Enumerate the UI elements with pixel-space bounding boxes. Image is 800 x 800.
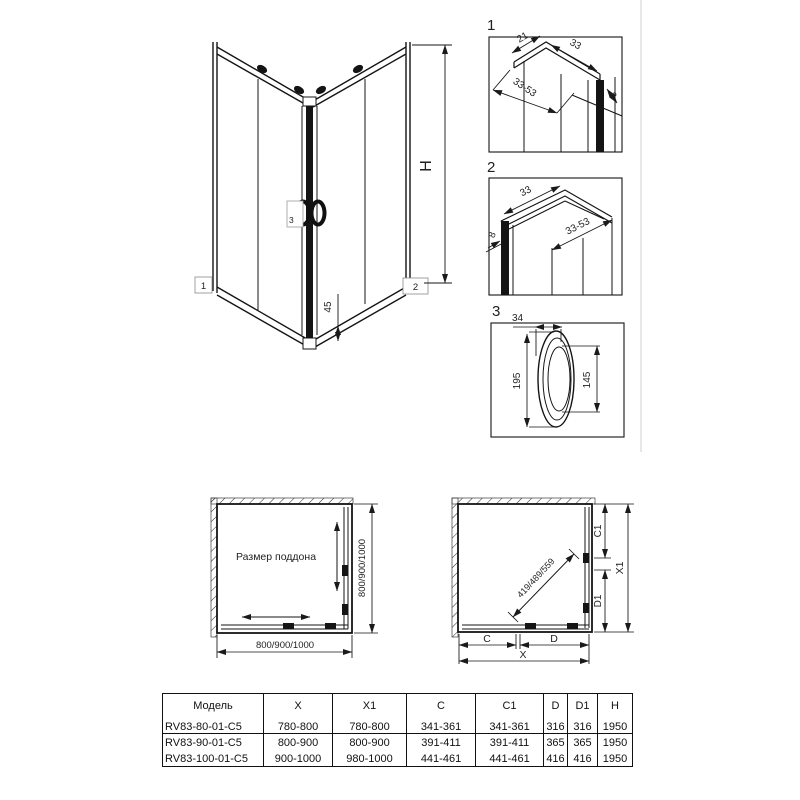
iso-callout-3: 3 bbox=[289, 215, 294, 225]
table-row: RV83-90-01-C5 800-900 800-900 391-411 39… bbox=[163, 734, 633, 752]
cell-d1: 365 bbox=[568, 734, 598, 752]
spec-table: Модель X X1 C C1 D D1 H RV83-80-01-C5 78… bbox=[162, 693, 633, 767]
cell-model: RV83-90-01-C5 bbox=[163, 734, 264, 752]
cell-d1: 416 bbox=[568, 751, 598, 767]
header-d1: D1 bbox=[568, 694, 598, 718]
iso-callout-1: 1 bbox=[201, 281, 206, 292]
cell-x1: 780-800 bbox=[333, 717, 407, 734]
detail-2-dim-range: 33-53 bbox=[564, 216, 592, 238]
tray-size-label: Размер поддона bbox=[236, 551, 316, 563]
dim-x1-label: X1 bbox=[614, 561, 626, 574]
dim-c-label: C bbox=[483, 633, 491, 645]
cell-c: 341-361 bbox=[407, 717, 476, 734]
detail-3-dim-195: 195 bbox=[512, 372, 523, 389]
detail-3 bbox=[491, 323, 624, 437]
cell-d: 365 bbox=[544, 734, 568, 752]
detail-1-dim-8: 8 bbox=[606, 91, 618, 100]
dim-d1-label: D1 bbox=[593, 594, 604, 607]
detail-3-dim-145: 145 bbox=[582, 371, 593, 388]
detail-2-dim-8: 8 bbox=[487, 231, 499, 240]
detail-3-number: 3 bbox=[492, 303, 500, 320]
detail-1-number: 1 bbox=[487, 17, 495, 34]
cell-x: 900-1000 bbox=[264, 751, 333, 767]
plan-right bbox=[452, 498, 634, 664]
header-d: D bbox=[544, 694, 568, 718]
dim-d-label: D bbox=[550, 633, 558, 645]
table-header-row: Модель X X1 C C1 D D1 H bbox=[163, 694, 633, 718]
header-c1: C1 bbox=[476, 694, 544, 718]
header-x1: X1 bbox=[333, 694, 407, 718]
cell-model: RV83-80-01-C5 bbox=[163, 717, 264, 734]
cell-h: 1950 bbox=[598, 734, 633, 752]
cell-c1: 341-361 bbox=[476, 717, 544, 734]
detail-2-number: 2 bbox=[487, 159, 495, 176]
dim-x-label: X bbox=[519, 649, 526, 661]
detail-2-dim-33: 33 bbox=[518, 184, 533, 199]
detail-1-dim-range: 33-53 bbox=[511, 76, 539, 100]
cell-c1: 391-411 bbox=[476, 734, 544, 752]
detail-2 bbox=[486, 178, 622, 295]
plan-left-depth-dim: 800/900/1000 bbox=[357, 539, 368, 597]
detail-3-dim-34: 34 bbox=[512, 313, 524, 324]
dim-c1-label: C1 bbox=[593, 524, 604, 537]
handle-icon bbox=[312, 202, 325, 225]
cell-h: 1950 bbox=[598, 717, 633, 734]
cell-d: 316 bbox=[544, 717, 568, 734]
plan-left-width-dim: 800/900/1000 bbox=[256, 640, 314, 651]
cell-c: 441-461 bbox=[407, 751, 476, 767]
cell-x1: 800-900 bbox=[333, 734, 407, 752]
header-c: C bbox=[407, 694, 476, 718]
drawing-svg: 1 2 3 H 45 1 21 33 33-53 8 2 33 33-53 8 bbox=[0, 0, 800, 800]
cell-x: 800-900 bbox=[264, 734, 333, 752]
cell-model: RV83-100-01-C5 bbox=[163, 751, 264, 767]
detail-1 bbox=[489, 36, 622, 152]
iso-callout-2: 2 bbox=[413, 282, 418, 293]
header-x: X bbox=[264, 694, 333, 718]
cell-d: 416 bbox=[544, 751, 568, 767]
header-h: H bbox=[598, 694, 633, 718]
cell-x1: 980-1000 bbox=[333, 751, 407, 767]
cell-h: 1950 bbox=[598, 751, 633, 767]
cell-c1: 441-461 bbox=[476, 751, 544, 767]
technical-drawing-page: 1 2 3 H 45 1 21 33 33-53 8 2 33 33-53 8 bbox=[0, 0, 800, 800]
table-row: RV83-100-01-C5 900-1000 980-1000 441-461… bbox=[163, 751, 633, 767]
cell-d1: 316 bbox=[568, 717, 598, 734]
table-row: RV83-80-01-C5 780-800 780-800 341-361 34… bbox=[163, 717, 633, 734]
plan-left bbox=[211, 498, 378, 658]
dim-h-label: H bbox=[418, 160, 435, 172]
dim-45-label: 45 bbox=[323, 301, 334, 313]
header-model: Модель bbox=[163, 694, 264, 718]
cell-x: 780-800 bbox=[264, 717, 333, 734]
detail-1-dim-33: 33 bbox=[568, 37, 583, 52]
cell-c: 391-411 bbox=[407, 734, 476, 752]
